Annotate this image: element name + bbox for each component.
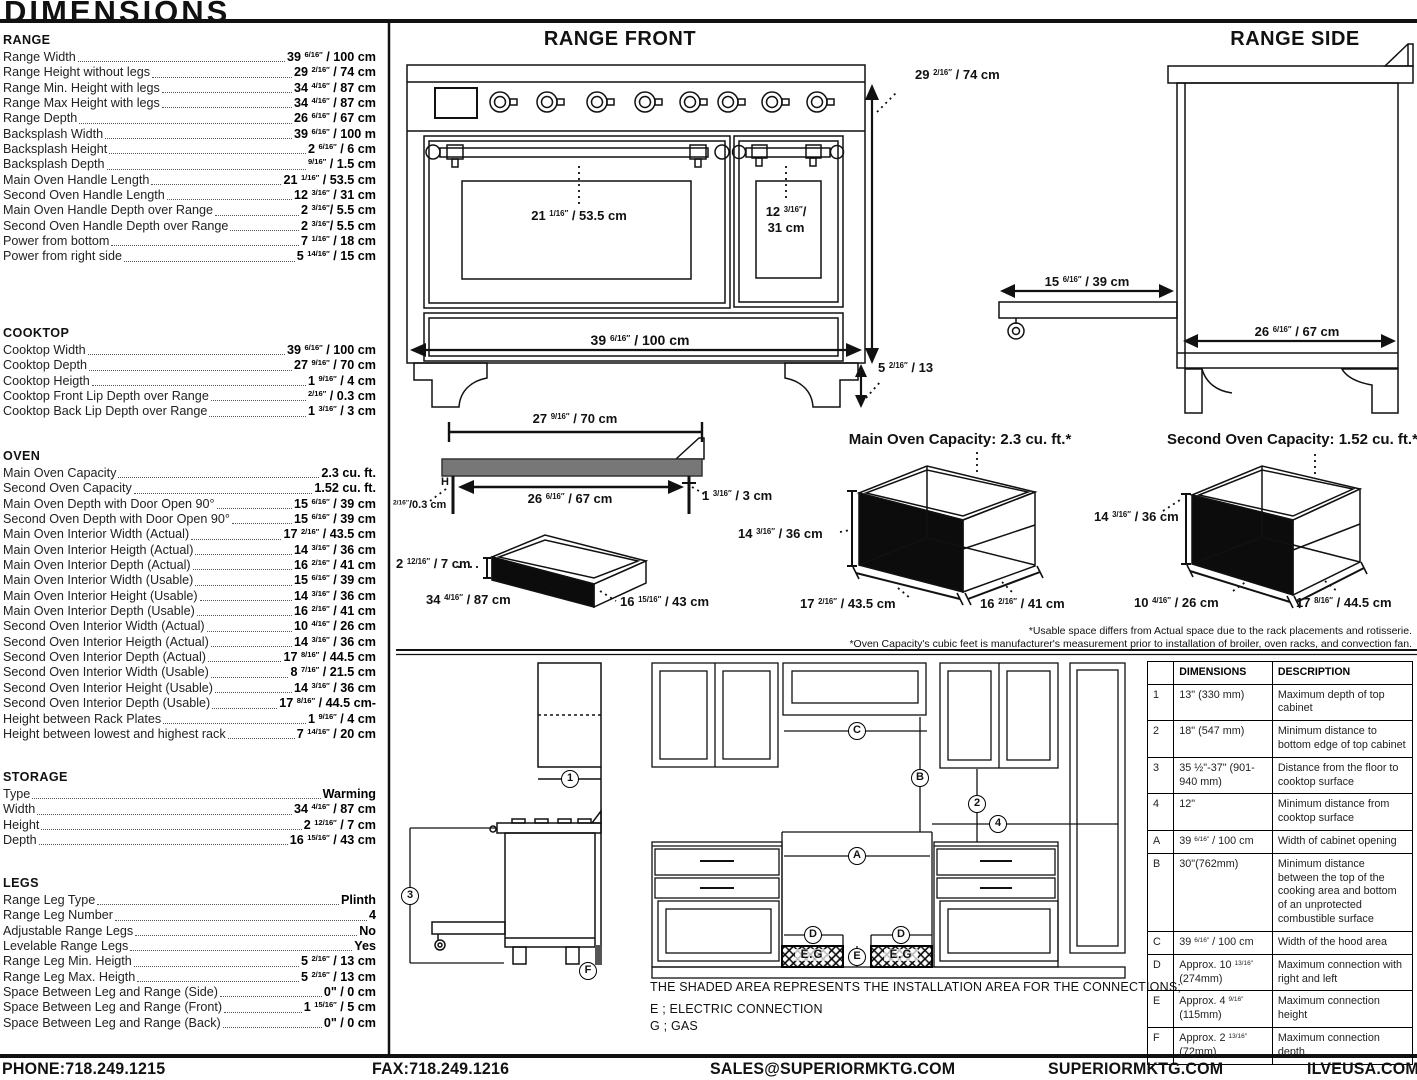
spec-row: Cooktop Depth27 9/16″ / 70 cm [3,358,376,373]
footer-email: SALES@SUPERIORMKTG.COM [710,1059,955,1079]
dotted-leader [107,169,306,170]
dotted-leader [228,738,295,739]
spec-row: Second Oven Handle Depth over Range2 3/1… [3,219,376,234]
dotted-leader [39,844,288,845]
spec-label: Space Between Leg and Range (Front) [3,1000,222,1015]
spec-label: Second Oven Interior Heigth (Actual) [3,635,209,650]
electric-gas-area-label-left: E.G [795,949,829,961]
install-ref-cell: E [1148,991,1174,1028]
spec-value: 39 6/16″ / 100 m [294,127,376,142]
spec-row: Range Leg Number4 [3,908,376,923]
spec-row: Range Leg Max. Heigth5 2/16″ / 13 cm [3,970,376,985]
install-dim-cell: Approx. 4 9/16″ (115mm) [1174,991,1273,1028]
dotted-leader [124,261,295,262]
spec-row: Height between Rack Plates1 9/16″ / 4 cm [3,712,376,727]
dotted-leader [109,153,306,154]
dotted-leader [209,416,306,417]
gas-connection-note: G ; GAS [650,1019,698,1033]
spec-row: Main Oven Interior Depth (Usable)16 2/16… [3,604,376,619]
dotted-leader [162,107,292,108]
spec-value: 12 3/16″ / 31 cm [294,188,376,203]
spec-row: Second Oven Interior Width (Actual)10 4/… [3,619,376,634]
install-table-header-row: DIMENSIONS DESCRIPTION [1148,662,1413,685]
marker-A: A [848,847,866,865]
side-depth-label: 26 6/16″ / 67 cm [1217,324,1377,339]
install-table-row: 412"Minimum distance from cooktop surfac… [1148,794,1413,831]
spec-value: 2 6/16″ / 6 cm [308,142,376,157]
install-table-row: EApprox. 4 9/16″ (115mm)Maximum connecti… [1148,991,1413,1028]
footnote-line1: *Usable space differs from Actual space … [820,625,1412,638]
install-dim-cell: 12" [1174,794,1273,831]
dotted-leader [211,677,289,678]
spec-value: 4 [369,908,376,923]
spec-label: Levelable Range Legs [3,939,128,954]
spec-label: Space Between Leg and Range (Back) [3,1016,221,1031]
spec-row: Main Oven Interior Width (Actual)17 2/16… [3,527,376,542]
dotted-leader [207,631,292,632]
dotted-leader [230,230,299,231]
spec-value: 16 2/16″ / 41 cm [294,558,376,573]
marker-1: 1 [561,770,579,788]
spec-label: Second Oven Capacity [3,481,132,496]
spec-value: No [359,924,376,939]
marker-4: 4 [989,815,1007,833]
dotted-leader [78,61,285,62]
install-ref-cell: B [1148,853,1174,931]
marker-2: 2 [968,795,986,813]
spec-section-title: LEGS [3,876,376,890]
main-oven-depth-label: 16 2/16″ / 41 cm [980,596,1065,611]
dotted-leader [193,569,292,570]
install-desc-cell: Minimum distance from cooktop surface [1272,794,1412,831]
main-oven-capacity-drawing [840,452,1043,605]
spec-section-title: STORAGE [3,770,376,784]
dotted-leader [105,138,292,139]
dotted-leader [111,245,299,246]
spec-label: Range Height without legs [3,65,150,80]
control-knobs [490,92,834,112]
spec-label: Range Max Height with legs [3,96,160,111]
spec-row: Main Oven Interior Heigth (Actual)14 3/1… [3,543,376,558]
spec-section-title: RANGE [3,33,376,47]
spec-value: 0" / 0 cm [324,1016,376,1031]
range-side-drawing [999,44,1413,413]
spec-value: 16 15/16″ / 43 cm [290,833,376,848]
spec-value: 10 4/16″ / 26 cm [294,619,376,634]
spec-label: Main Oven Interior Depth (Actual) [3,558,191,573]
spec-value: 2/16″ / 0.3 cm [308,389,376,404]
spec-value: 26 6/16″ / 67 cm [294,111,376,126]
spec-value: 27 9/16″ / 70 cm [294,358,376,373]
main-oven-height-label: 14 3/16″ / 36 cm [738,526,823,541]
dotted-leader [32,798,320,799]
capacity-footnotes: *Usable space differs from Actual space … [820,625,1412,650]
spec-row: Main Oven Interior Height (Usable)14 3/1… [3,589,376,604]
spec-label: Main Oven Handle Depth over Range [3,203,213,218]
second-oven-capacity-title: Second Oven Capacity: 1.52 cu. ft.* [1167,431,1415,448]
spec-value: 39 6/16″ / 100 cm [287,50,376,65]
install-ref-cell: C [1148,931,1174,954]
spec-label: Main Oven Handle Length [3,173,149,188]
dotted-leader [152,77,292,78]
install-ref-cell: D [1148,954,1174,991]
spec-label: Range Min. Height with legs [3,81,160,96]
dotted-leader [197,615,292,616]
spec-value: 34 4/16″ / 87 cm [294,802,376,817]
spec-label: Height between lowest and highest rack [3,727,226,742]
spec-row: Power from bottom7 1/16″ / 18 cm [3,234,376,249]
dotted-leader [195,554,292,555]
spec-row: Cooktop Width39 6/16″ / 100 cm [3,343,376,358]
front-leg-height-label: 5 2/16″ / 13 [878,360,933,375]
marker-3: 3 [401,887,419,905]
spec-row: Second Oven Interior Heigth (Actual)14 3… [3,635,376,650]
install-desc-cell: Maximum connection height [1272,991,1412,1028]
dotted-leader [212,708,277,709]
dotted-leader [89,370,292,371]
drawer-height-label: 2 12/16″ / 7 cm [396,556,471,571]
spec-section-legs: LEGSRange Leg TypePlinthRange Leg Number… [3,876,376,1031]
spec-label: Range Depth [3,111,77,126]
spec-label: Cooktop Back Lip Depth over Range [3,404,207,419]
spec-row: Main Oven Interior Depth (Actual)16 2/16… [3,558,376,573]
spec-value: 7 1/16″ / 18 cm [301,234,376,249]
spec-value: 5 14/16″ / 15 cm [297,249,376,264]
spec-value: 34 4/16″ / 87 cm [294,96,376,111]
install-dim-cell: Approx. 10 13/16″ (274mm) [1174,954,1273,991]
spec-section-cooktop: COOKTOPCooktop Width39 6/16″ / 100 cmCoo… [3,326,376,420]
drawer-width-label: 34 4/16″ / 87 cm [426,592,511,607]
dotted-leader [220,996,322,997]
spec-row: Range Leg TypePlinth [3,893,376,908]
spec-label: Main Oven Depth with Door Open 90° [3,497,215,512]
second-oven-depth-label: 17 8/16″ / 44.5 cm [1296,595,1392,610]
installation-front-view [652,663,1125,978]
marker-E: E [848,948,866,966]
install-table-row: C39 6/16″ / 100 cmWidth of the hood area [1148,931,1413,954]
spec-value: Yes [354,939,376,954]
spec-label: Second Oven Interior Depth (Actual) [3,650,206,665]
front-second-handle-line1: 12 3/16″/ [746,204,826,220]
front-width-label: 39 6/16″ / 100 cm [565,332,715,348]
electric-gas-area-label-right: E.G [884,949,918,961]
spec-row: Second Oven Depth with Door Open 90°15 6… [3,512,376,527]
spec-value: 0" / 0 cm [324,985,376,1000]
spec-row: Width34 4/16″ / 87 cm [3,802,376,817]
marker-D-left: D [804,926,822,944]
spec-row: TypeWarming [3,787,376,802]
dotted-leader [130,950,352,951]
range-side-title: RANGE SIDE [1180,28,1410,51]
spec-label: Second Oven Interior Depth (Usable) [3,696,210,711]
spec-label: Main Oven Interior Width (Actual) [3,527,189,542]
spec-row: Second Oven Interior Depth (Usable)17 8/… [3,696,376,711]
dotted-leader [134,966,299,967]
range-front-title: RANGE FRONT [500,28,740,51]
spec-label: Backsplash Depth [3,157,105,172]
cooktop-back-lip-label: 1 3/16″ / 3 cm [702,488,772,503]
spec-value: 1.52 cu. ft. [314,481,376,496]
side-door-depth-label: 15 6/16″ / 39 cm [1007,274,1167,289]
electric-connection-note: E ; ELECTRIC CONNECTION [650,1002,823,1016]
dotted-leader [37,814,292,815]
dotted-leader [115,920,367,921]
spec-section-storage: STORAGETypeWarmingWidth34 4/16″ / 87 cmH… [3,770,376,848]
second-oven-height-label: 14 3/16″ / 36 cm [1094,509,1179,524]
spec-row: Cooktop Back Lip Depth over Range1 3/16″… [3,404,376,419]
spec-label: Second Oven Interior Width (Usable) [3,665,209,680]
install-desc-cell: Maximum connection with right and left [1272,954,1412,991]
spec-value: 34 4/16″ / 87 cm [294,81,376,96]
spec-value: 29 2/16″ / 74 cm [294,65,376,80]
spec-row: Second Oven Interior Height (Usable)14 3… [3,681,376,696]
spec-row: Second Oven Handle Length12 3/16″ / 31 c… [3,188,376,203]
spec-value: 1 9/16″ / 4 cm [308,374,376,389]
spec-label: Second Oven Handle Depth over Range [3,219,228,234]
install-table: DIMENSIONS DESCRIPTION 113" (330 mm)Maxi… [1147,661,1413,1065]
spec-row: Range Max Height with legs34 4/16″ / 87 … [3,96,376,111]
front-main-handle-label: 21 1/16″ / 53.5 cm [489,208,669,223]
dotted-leader [208,661,281,662]
dotted-leader [195,585,292,586]
spec-row: Cooktop Front Lip Depth over Range2/16″ … [3,389,376,404]
spec-label: Main Oven Interior Heigth (Actual) [3,543,193,558]
spec-row: Height2 12/16″ / 7 cm [3,818,376,833]
dotted-leader [41,829,301,830]
install-table-dim-header: DIMENSIONS [1174,662,1273,685]
install-ref-cell: 4 [1148,794,1174,831]
spec-label: Depth [3,833,37,848]
spec-row: Main Oven Handle Depth over Range2 3/16″… [3,203,376,218]
spec-row: Range Width39 6/16″ / 100 cm [3,50,376,65]
dotted-leader [191,539,281,540]
installation-side-view [410,663,602,965]
install-table-row: B30"(762mm)Minimum distance between the … [1148,853,1413,931]
spec-row: Adjustable Range LegsNo [3,924,376,939]
spec-row: Second Oven Interior Width (Usable)8 7/1… [3,665,376,680]
install-desc-cell: Width of cabinet opening [1272,831,1412,854]
marker-B: B [911,769,929,787]
spec-value: 15 6/16″ / 39 cm [294,497,376,512]
dotted-leader [92,385,306,386]
main-oven-width-label: 17 2/16″ / 43.5 cm [800,596,896,611]
dotted-leader [211,646,292,647]
spec-value: 1 15/16″ / 5 cm [304,1000,376,1015]
dotted-leader [200,600,292,601]
install-table-ref-header [1148,662,1174,685]
spec-label: Type [3,787,30,802]
spec-value: 21 1/16″ / 53.5 cm [283,173,376,188]
range-front-drawing [407,65,897,408]
install-table-row: DApprox. 10 13/16″ (274mm)Maximum connec… [1148,954,1413,991]
spec-label: Main Oven Capacity [3,466,116,481]
spec-value: 15 6/16″ / 39 cm [294,573,376,588]
spec-label: Range Leg Type [3,893,95,908]
spec-value: Plinth [341,893,376,908]
spec-value: 2 3/16″/ 5.5 cm [301,203,376,218]
spec-value: 16 2/16″ / 41 cm [294,604,376,619]
install-ref-cell: 2 [1148,721,1174,758]
install-table-row: A39 6/16″ / 100 cmWidth of cabinet openi… [1148,831,1413,854]
spec-label: Main Oven Interior Depth (Usable) [3,604,195,619]
spec-row: Range Leg Min. Heigth5 2/16″ / 13 cm [3,954,376,969]
marker-D-right: D [892,926,910,944]
spec-sheet-page: DIMENSIONS RANGE FRONT RANGE SIDE RANGER… [0,0,1417,1080]
spec-value: 17 2/16″ / 43.5 cm [283,527,376,542]
cooktop-h-mark: H [441,476,449,488]
spec-row: Main Oven Handle Length21 1/16″ / 53.5 c… [3,173,376,188]
install-desc-cell: Width of the hood area [1272,931,1412,954]
spec-row: Main Oven Interior Width (Usable)15 6/16… [3,573,376,588]
spec-row: Backsplash Width39 6/16″ / 100 m [3,127,376,142]
spec-value: 7 14/16″ / 20 cm [297,727,376,742]
dotted-leader [134,493,313,494]
spec-label: Second Oven Depth with Door Open 90° [3,512,230,527]
front-second-handle-label: 12 3/16″/ 31 cm [746,204,826,236]
spec-row: Second Oven Interior Depth (Actual)17 8/… [3,650,376,665]
install-table-row: 335 ½"-37" (901-940 mm)Distance from the… [1148,757,1413,794]
dotted-leader [97,904,339,905]
front-height-label: 29 2/16″ / 74 cm [915,67,1000,82]
spec-row: Main Oven Capacity2.3 cu. ft. [3,466,376,481]
spec-row: Depth16 15/16″ / 43 cm [3,833,376,848]
dotted-leader [211,400,306,401]
spec-row: Range Height without legs29 2/16″ / 74 c… [3,65,376,80]
second-oven-width-label: 10 4/16″ / 26 cm [1134,595,1219,610]
spec-label: Power from bottom [3,234,109,249]
spec-value: 39 6/16″ / 100 cm [287,343,376,358]
spec-label: Main Oven Interior Height (Usable) [3,589,198,604]
install-dim-cell: 39 6/16″ / 100 cm [1174,831,1273,854]
spec-value: 14 3/16″ / 36 cm [294,589,376,604]
install-dim-cell: 39 6/16″ / 100 cm [1174,931,1273,954]
spec-row: Main Oven Depth with Door Open 90°15 6/1… [3,497,376,512]
marker-F: F [579,962,597,980]
spec-value: 17 8/16″ / 44.5 cm- [279,696,376,711]
cooktop-inner-width-label: 26 6/16″ / 67 cm [480,491,660,506]
front-second-handle-line2: 31 cm [746,220,826,236]
install-dim-cell: 35 ½"-37" (901-940 mm) [1174,757,1273,794]
dotted-leader [79,123,292,124]
drawer-depth-label: 16 15/16″ / 43 cm [620,594,709,609]
install-table-desc-header: DESCRIPTION [1272,662,1412,685]
install-table-row: 218" (547 mm)Minimum distance to bottom … [1148,721,1413,758]
marker-C: C [848,722,866,740]
install-desc-cell: Maximum depth of top cabinet [1272,684,1412,721]
spec-value: 2 3/16″/ 5.5 cm [301,219,376,234]
dotted-leader [217,508,292,509]
spec-value: Warming [323,787,376,802]
dotted-leader [151,184,281,185]
spec-row: Range Min. Height with legs34 4/16″ / 87… [3,81,376,96]
cooktop-width-label: 27 9/16″ / 70 cm [490,411,660,426]
dotted-leader [215,692,292,693]
dotted-leader [215,215,299,216]
spec-value: 5 2/16″ / 13 cm [301,954,376,969]
install-ref-cell: 1 [1148,684,1174,721]
install-desc-cell: Minimum distance to bottom edge of top c… [1272,721,1412,758]
dotted-leader [118,477,319,478]
install-desc-cell: Distance from the floor to cooktop surfa… [1272,757,1412,794]
spec-label: Cooktop Width [3,343,86,358]
install-dim-cell: 30"(762mm) [1174,853,1273,931]
spec-row: Power from right side5 14/16″ / 15 cm [3,249,376,264]
spec-row: Range Depth26 6/16″ / 67 cm [3,111,376,126]
install-ref-cell: 3 [1148,757,1174,794]
install-dim-cell: 18" (547 mm) [1174,721,1273,758]
spec-label: Range Width [3,50,76,65]
spec-row: Second Oven Capacity1.52 cu. ft. [3,481,376,496]
spec-value: 9/16″ / 1.5 cm [308,157,376,172]
spec-row: Space Between Leg and Range (Side)0" / 0… [3,985,376,1000]
spec-label: Power from right side [3,249,122,264]
spec-value: 8 7/16″ / 21.5 cm [290,665,376,680]
spec-label: Main Oven Interior Width (Usable) [3,573,193,588]
dotted-leader [137,981,299,982]
spec-label: Range Leg Number [3,908,113,923]
spec-value: 14 3/16″ / 36 cm [294,681,376,696]
spec-section-title: COOKTOP [3,326,376,340]
spec-value: 1 9/16″ / 4 cm [308,712,376,727]
spec-section-title: OVEN [3,449,376,463]
main-oven-capacity-title: Main Oven Capacity: 2.3 cu. ft.* [845,431,1075,448]
spec-value: 2.3 cu. ft. [321,466,376,481]
spec-row: Space Between Leg and Range (Front)1 15/… [3,1000,376,1015]
dotted-leader [232,523,292,524]
footer-phone: PHONE:718.249.1215 [2,1059,165,1079]
dotted-leader [224,1012,302,1013]
spec-label: Range Leg Min. Heigth [3,954,132,969]
spec-label: Cooktop Depth [3,358,87,373]
dotted-leader [162,92,292,93]
spec-label: Space Between Leg and Range (Side) [3,985,218,1000]
spec-label: Cooktop Front Lip Depth over Range [3,389,209,404]
install-dim-cell: 13" (330 mm) [1174,684,1273,721]
footer-fax: FAX:718.249.1216 [372,1059,509,1079]
install-desc-cell: Minimum distance between the top of the … [1272,853,1412,931]
installation-note: THE SHADED AREA REPRESENTS THE INSTALLAT… [650,980,1181,994]
spec-label: Second Oven Interior Width (Actual) [3,619,205,634]
dotted-leader [167,199,292,200]
dotted-leader [223,1027,322,1028]
cooktop-front-lip-label: 2/16″/0.3 cm [393,499,446,511]
spec-label: Height between Rack Plates [3,712,161,727]
spec-row: Space Between Leg and Range (Back)0" / 0… [3,1016,376,1031]
spec-value: 2 12/16″ / 7 cm [304,818,376,833]
spec-row: Cooktop Heigth1 9/16″ / 4 cm [3,374,376,389]
spec-row: Levelable Range LegsYes [3,939,376,954]
spec-label: Backsplash Width [3,127,103,142]
dotted-leader [163,723,306,724]
install-table-row: 113" (330 mm)Maximum depth of top cabine… [1148,684,1413,721]
spec-label: Second Oven Interior Height (Usable) [3,681,213,696]
footnote-line2: *Oven Capacity's cubic feet is manufactu… [820,638,1412,651]
spec-label: Range Leg Max. Heigth [3,970,135,985]
footer-brand: ILVEUSA.COM [1307,1059,1417,1079]
spec-value: 5 2/16″ / 13 cm [301,970,376,985]
spec-label: Adjustable Range Legs [3,924,133,939]
second-oven-capacity-drawing [1163,454,1367,608]
spec-label: Height [3,818,39,833]
spec-panel: RANGERange Width39 6/16″ / 100 cmRange H… [0,21,389,1057]
spec-row: Backsplash Height2 6/16″ / 6 cm [3,142,376,157]
spec-label: Width [3,802,35,817]
spec-label: Backsplash Height [3,142,107,157]
dotted-leader [88,354,285,355]
spec-section-range: RANGERange Width39 6/16″ / 100 cmRange H… [3,33,376,265]
spec-row: Height between lowest and highest rack7 … [3,727,376,742]
spec-value: 1 3/16″ / 3 cm [308,404,376,419]
